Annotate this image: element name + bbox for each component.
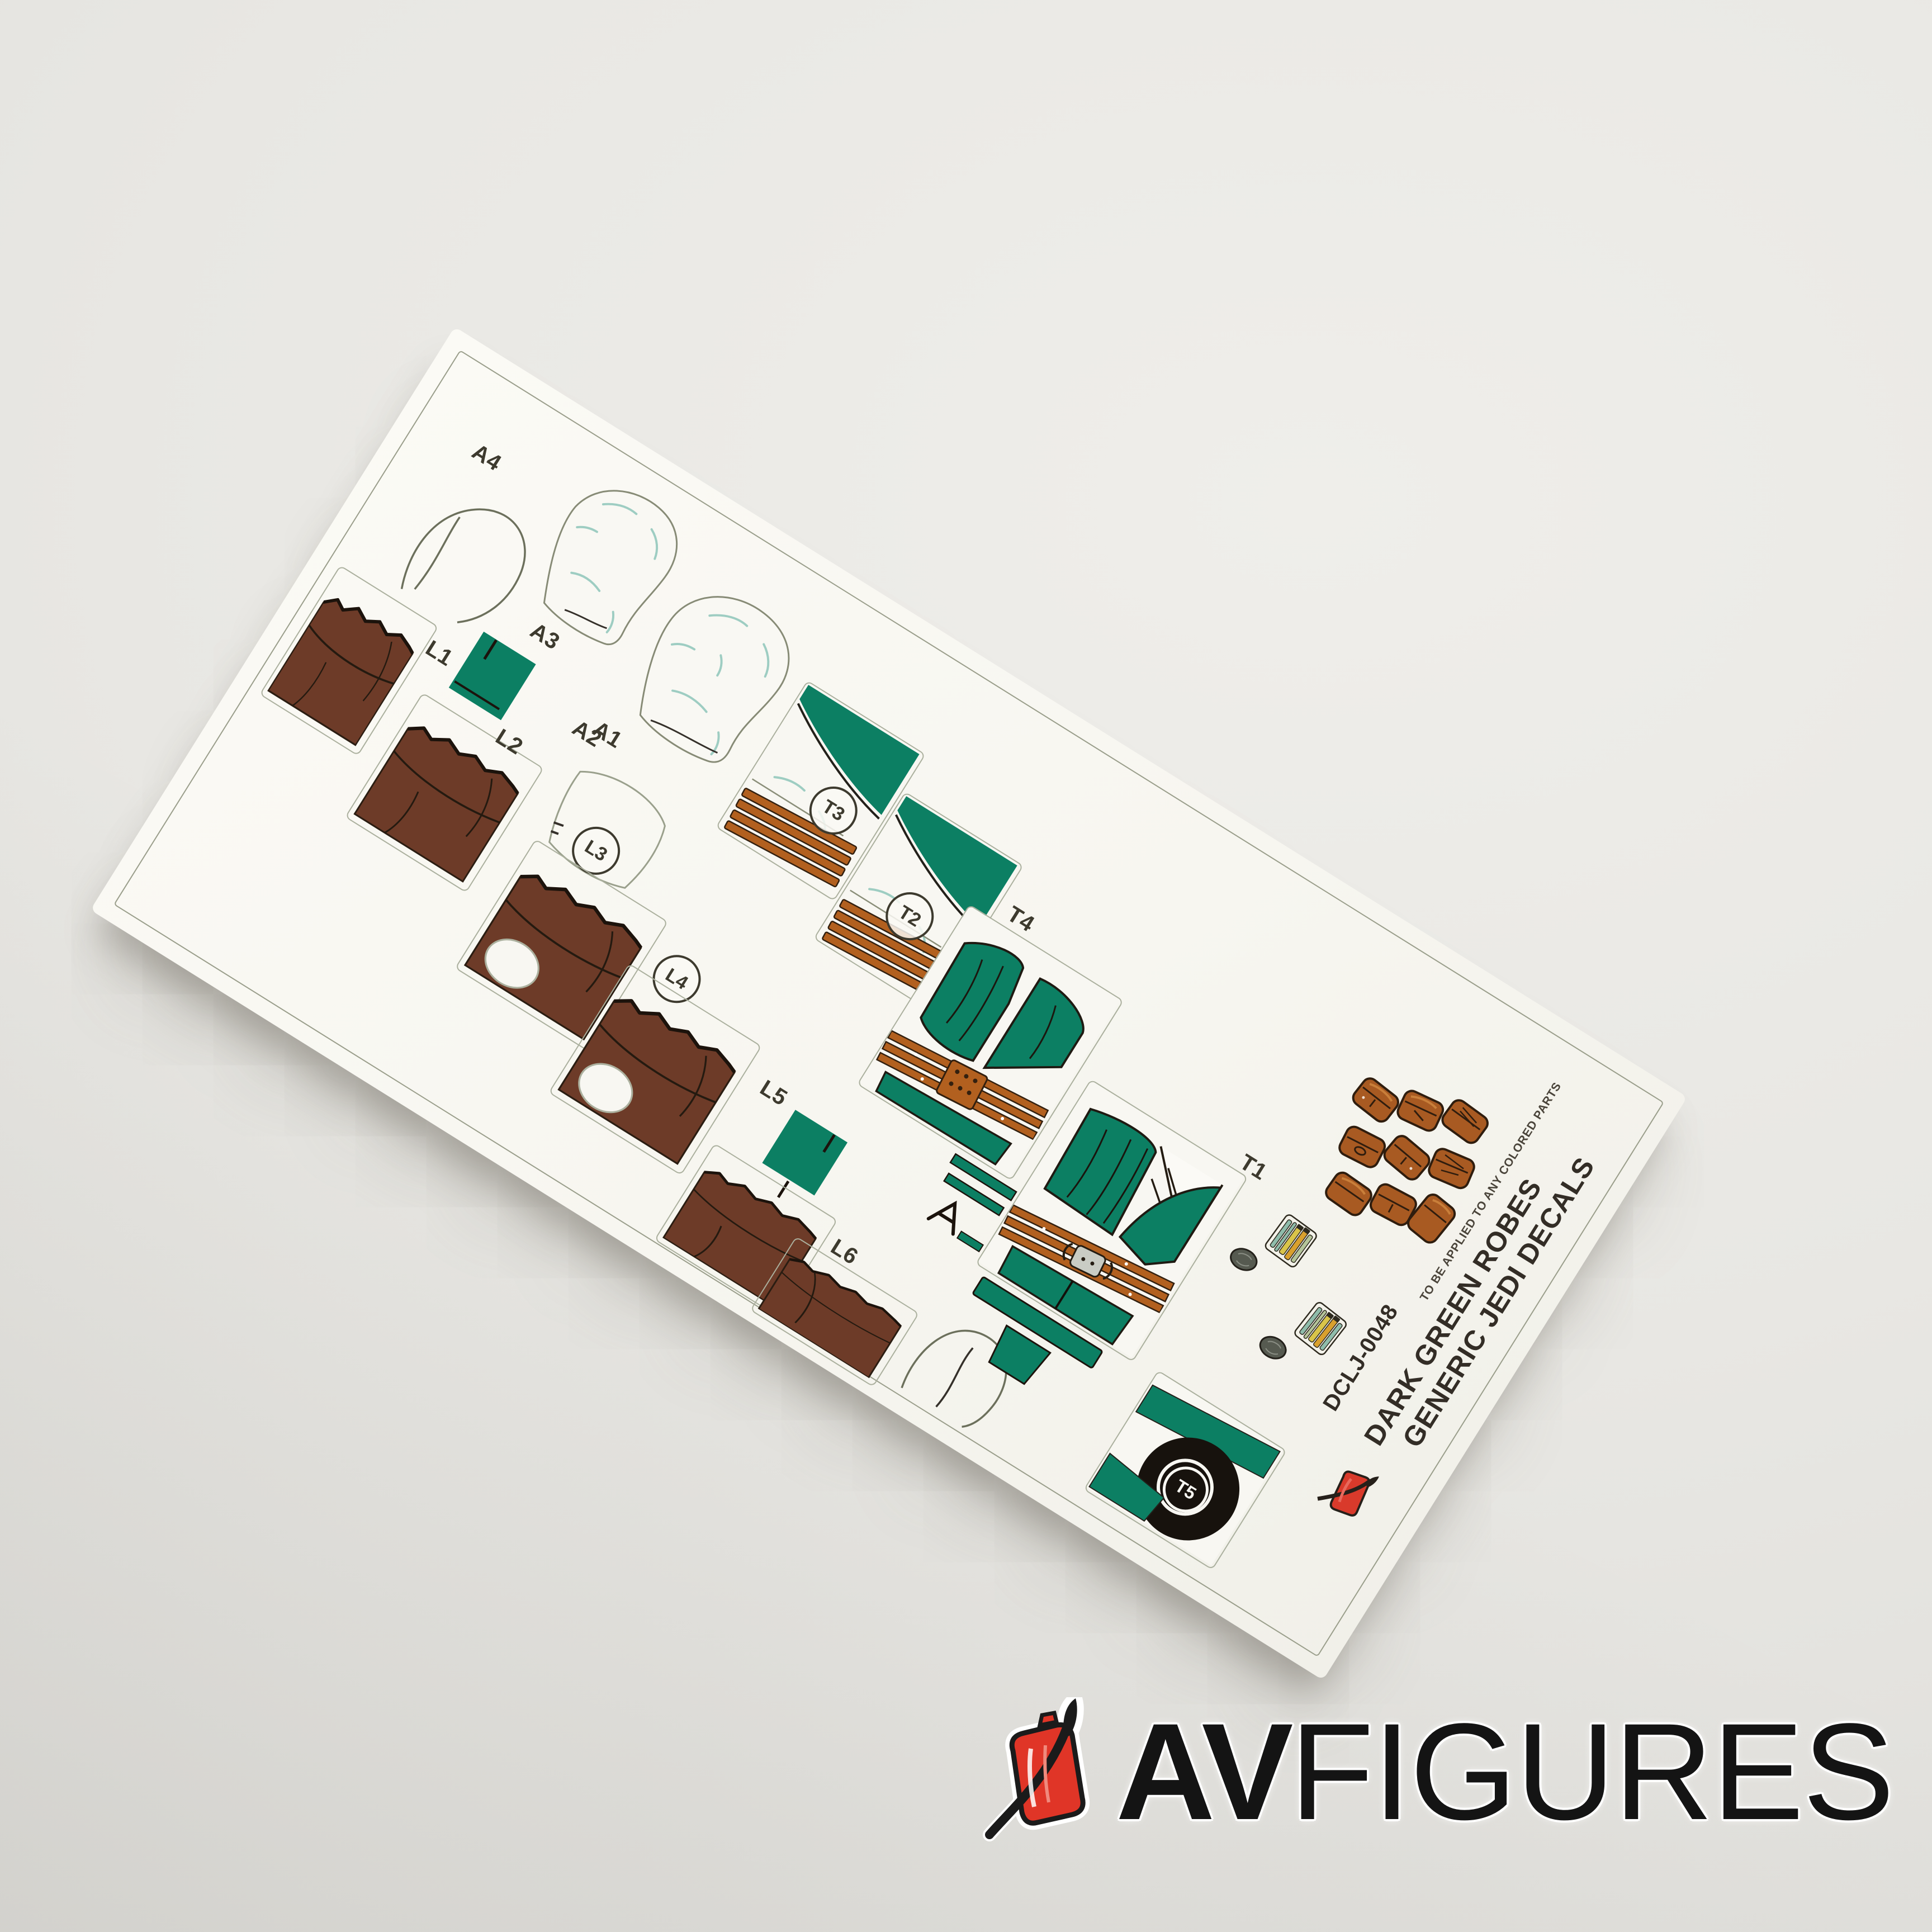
brand-logo-icon [973, 1697, 1101, 1847]
brand-text-figures: FIGURES [1290, 1695, 1893, 1849]
brand-wordmark: AVFIGURES [1116, 1703, 1893, 1841]
brand-watermark: AVFIGURES [973, 1688, 1893, 1856]
sheet-border-frame [113, 350, 1664, 1657]
brand-text-av: AV [1116, 1695, 1290, 1849]
photo-background: A4 A3 [0, 0, 1932, 1932]
decal-sheet: A4 A3 [91, 327, 1688, 1680]
